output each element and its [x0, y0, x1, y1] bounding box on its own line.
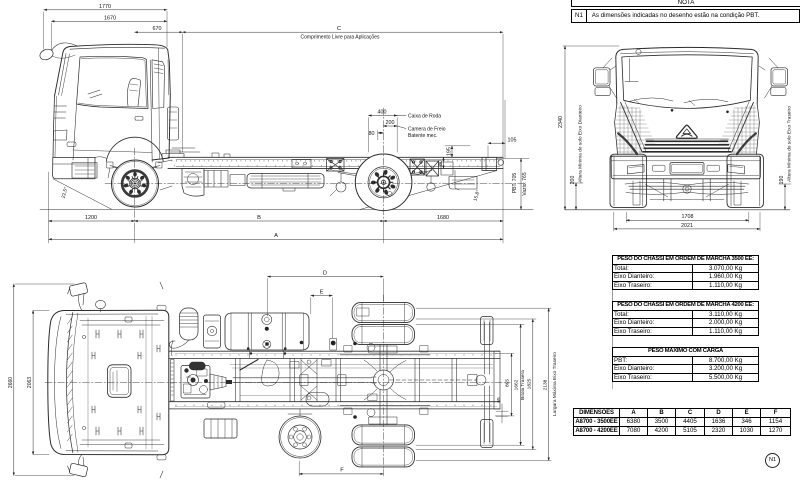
svg-text:1662: 1662 [513, 379, 519, 390]
svg-text:65: 65 [496, 397, 502, 403]
svg-text:PBT: 705: PBT: 705 [512, 173, 518, 194]
svg-text:80: 80 [438, 160, 444, 166]
svg-text:B: B [257, 215, 261, 221]
svg-text:1680: 1680 [437, 215, 449, 221]
svg-text:Altura Mínima do solo Eixo Tra: Altura Mínima do solo Eixo Traseiro [787, 106, 793, 182]
svg-text:195: 195 [447, 147, 453, 156]
svg-text:200: 200 [570, 176, 576, 185]
svg-text:2021: 2021 [681, 223, 693, 229]
svg-text:400: 400 [378, 109, 387, 115]
svg-text:2063: 2063 [27, 377, 33, 388]
svg-text:2138: 2138 [542, 379, 548, 390]
svg-text:1670: 1670 [104, 15, 116, 21]
svg-text:865: 865 [505, 379, 511, 387]
svg-text:A: A [274, 233, 278, 239]
svg-text:Batente mec.: Batente mec. [408, 133, 437, 139]
svg-text:D: D [323, 270, 327, 276]
svg-text:2660: 2660 [8, 377, 14, 388]
svg-text:15,8°: 15,8° [473, 189, 482, 202]
svg-text:80: 80 [369, 131, 375, 137]
svg-text:Altura Mínima do solo Eixo Dia: Altura Mínima do solo Eixo Dianteiro [578, 105, 584, 183]
svg-text:670: 670 [153, 26, 162, 32]
svg-text:200: 200 [386, 120, 395, 126]
svg-text:C: C [337, 26, 341, 32]
svg-text:Comprimento Livre para Aplicaç: Comprimento Livre para Aplicações [301, 35, 380, 41]
svg-text:1825: 1825 [526, 378, 532, 389]
svg-text:Vazio: 765: Vazio: 765 [522, 172, 528, 195]
svg-text:Camera de Freio: Camera de Freio [408, 127, 446, 133]
svg-text:190: 190 [779, 176, 785, 185]
svg-text:F: F [340, 468, 344, 474]
svg-text:1770: 1770 [99, 4, 111, 10]
svg-text:Caixa de Roda: Caixa de Roda [408, 114, 441, 120]
svg-text:1200: 1200 [85, 215, 97, 221]
svg-text:Largura Máxima Eixo Traseiro: Largura Máxima Eixo Traseiro [552, 352, 558, 416]
svg-text:22,5°: 22,5° [61, 186, 70, 199]
svg-text:1708: 1708 [682, 214, 694, 220]
svg-text:2340: 2340 [558, 116, 564, 128]
svg-text:E: E [320, 289, 324, 295]
svg-text:105: 105 [508, 138, 517, 144]
svg-text:Bitola Trasera: Bitola Trasera [520, 370, 526, 400]
